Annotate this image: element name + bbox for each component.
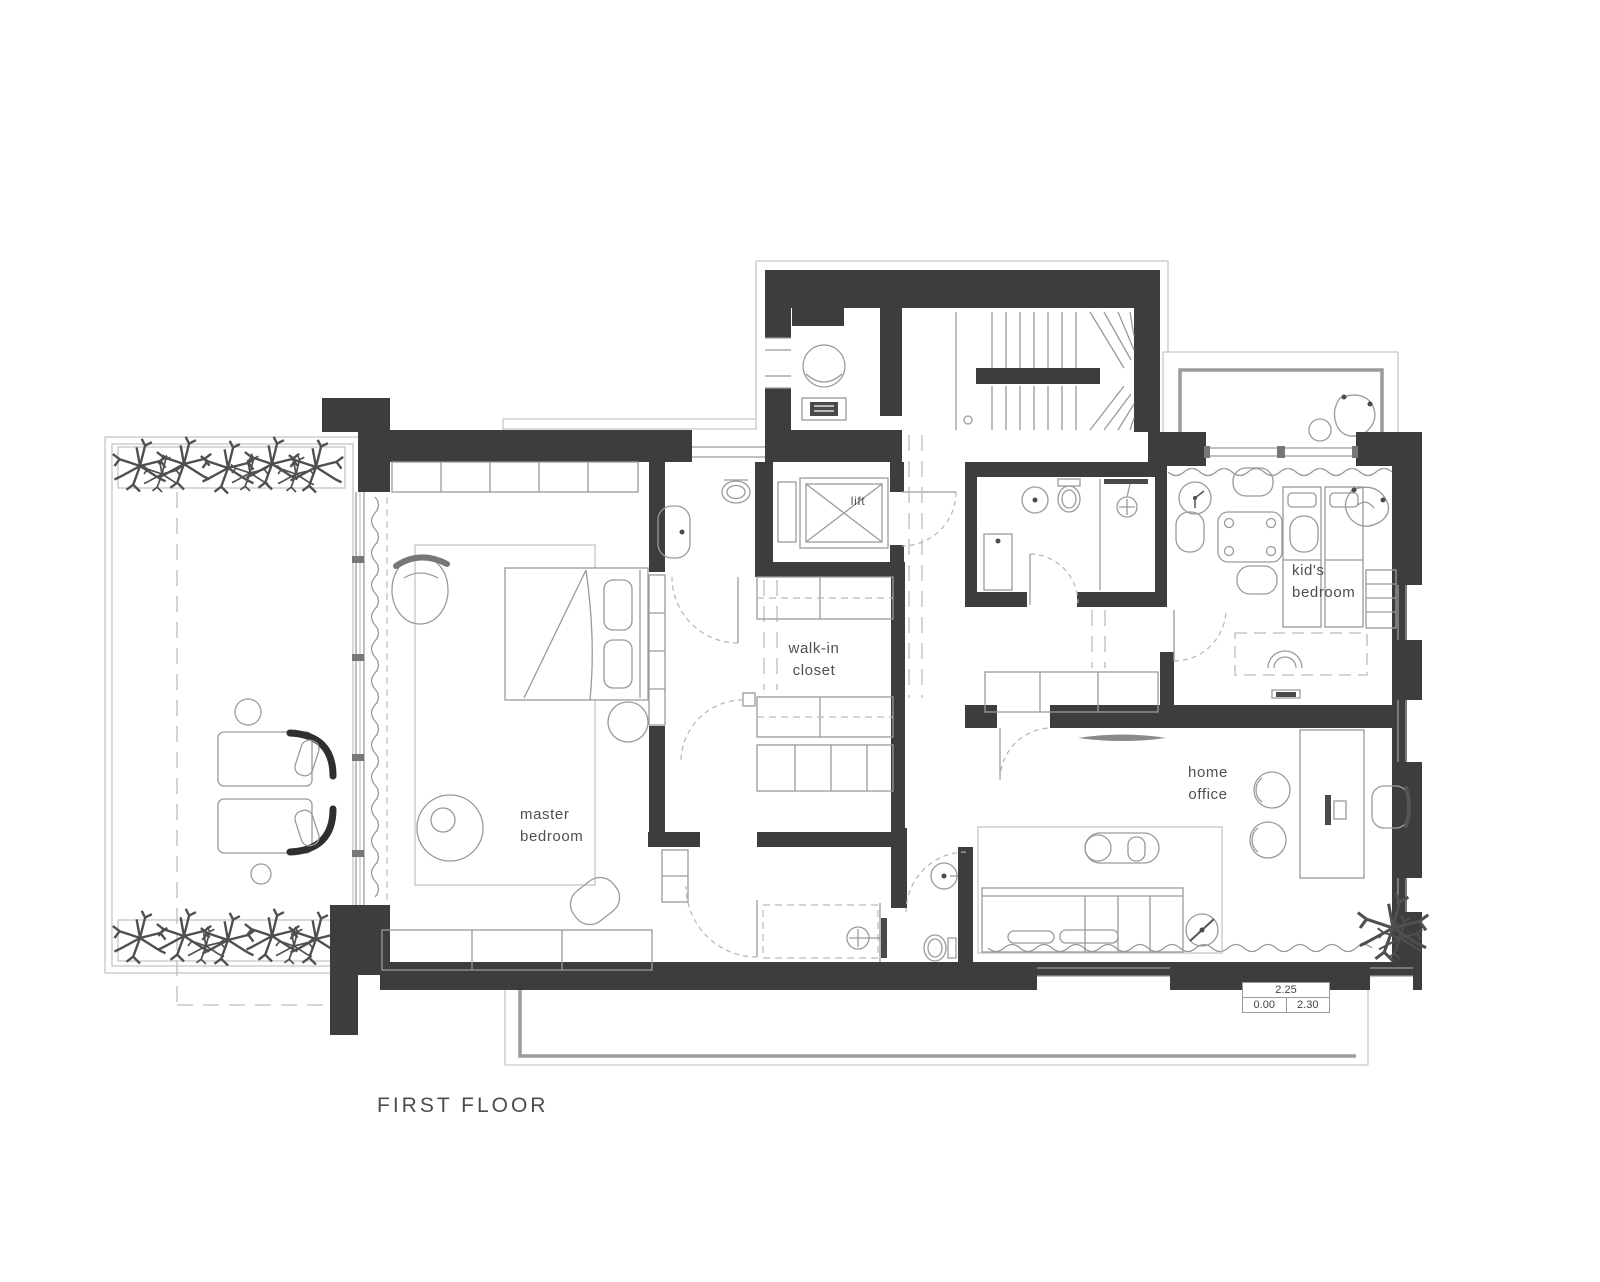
shower	[763, 905, 878, 958]
side-table	[235, 699, 261, 725]
toilet	[722, 480, 750, 503]
tv	[1272, 690, 1300, 698]
door-arc	[686, 886, 757, 957]
walkin-wardrobe	[757, 697, 893, 737]
sink	[1022, 487, 1048, 513]
desk	[1300, 730, 1364, 878]
toilet	[924, 935, 956, 961]
room-label-lift: lift	[838, 493, 878, 510]
walkin-shelves	[757, 745, 893, 791]
door-arc	[1030, 554, 1078, 603]
door-arc	[1000, 728, 1050, 780]
floor-fan	[1186, 914, 1218, 946]
lounge-chair	[218, 799, 333, 853]
planter-top	[113, 437, 345, 494]
shower-head	[847, 927, 881, 949]
planter-bottom	[113, 909, 345, 966]
side-table	[1309, 419, 1331, 441]
armchair	[392, 556, 448, 624]
stairs-landing	[976, 368, 1100, 384]
kids-bed	[1283, 487, 1321, 627]
room-label-home-office: home office	[1170, 762, 1246, 806]
door-arc	[906, 852, 966, 912]
play-tunnel	[1268, 651, 1302, 668]
vestibule	[802, 345, 846, 420]
bed	[505, 568, 648, 700]
kids-rug	[1235, 633, 1367, 675]
tub-chair	[1250, 822, 1286, 858]
tub-chair	[1254, 772, 1290, 808]
hanging-chair	[1334, 395, 1374, 436]
lift-shaft	[778, 478, 956, 548]
toilet	[1058, 479, 1080, 512]
bedside-table	[608, 702, 648, 742]
level-value-bottom-right: 2.30	[1286, 998, 1330, 1012]
wall-clock	[1179, 482, 1211, 514]
master-closet-north	[392, 462, 638, 492]
daybed	[982, 888, 1183, 952]
kids-chair	[1237, 566, 1277, 594]
level-marker-table: 2.25 0.00 2.30	[1242, 982, 1330, 1013]
lounge-chair	[218, 732, 333, 786]
door-arc	[681, 700, 743, 762]
kids-chair	[1290, 516, 1318, 552]
door-leaf	[743, 693, 755, 706]
floor-title: FIRST FLOOR	[377, 1094, 548, 1118]
kids-chair	[1233, 468, 1273, 496]
kids-table	[1218, 512, 1282, 562]
master-bedroom	[382, 462, 665, 970]
floor-plan: master bedroom walk-in closet lift kid's…	[0, 0, 1600, 1282]
walls	[322, 270, 1422, 1035]
door-arc	[902, 492, 956, 546]
kids-bathroom	[984, 479, 1148, 605]
side-table	[251, 864, 271, 884]
chaise-lounge	[1085, 833, 1159, 863]
monitor	[1325, 795, 1331, 825]
kids-bed	[1325, 487, 1363, 627]
linen-closet	[649, 575, 665, 725]
door-arc	[1174, 610, 1226, 661]
newel-post	[964, 416, 972, 424]
kids-chair	[1176, 512, 1204, 552]
ensuite-bathroom	[658, 480, 750, 643]
room-label-kids-bedroom: kid's bedroom	[1292, 560, 1384, 604]
shower-head	[1117, 484, 1137, 517]
room-label-walk-in-closet: walk-in closet	[772, 638, 856, 682]
level-value-bottom-left: 0.00	[1243, 998, 1286, 1012]
vestibule-chair	[803, 345, 845, 387]
terrace-left	[113, 437, 352, 1005]
door-arc	[672, 577, 738, 643]
pouf	[417, 795, 483, 861]
room-label-master-bedroom: master bedroom	[520, 804, 616, 848]
tv	[1078, 735, 1166, 742]
walkin-closet	[681, 577, 893, 791]
master-bathroom	[662, 850, 966, 962]
level-value-top: 2.25	[1243, 983, 1329, 997]
sink	[931, 863, 958, 889]
rug	[978, 827, 1222, 953]
